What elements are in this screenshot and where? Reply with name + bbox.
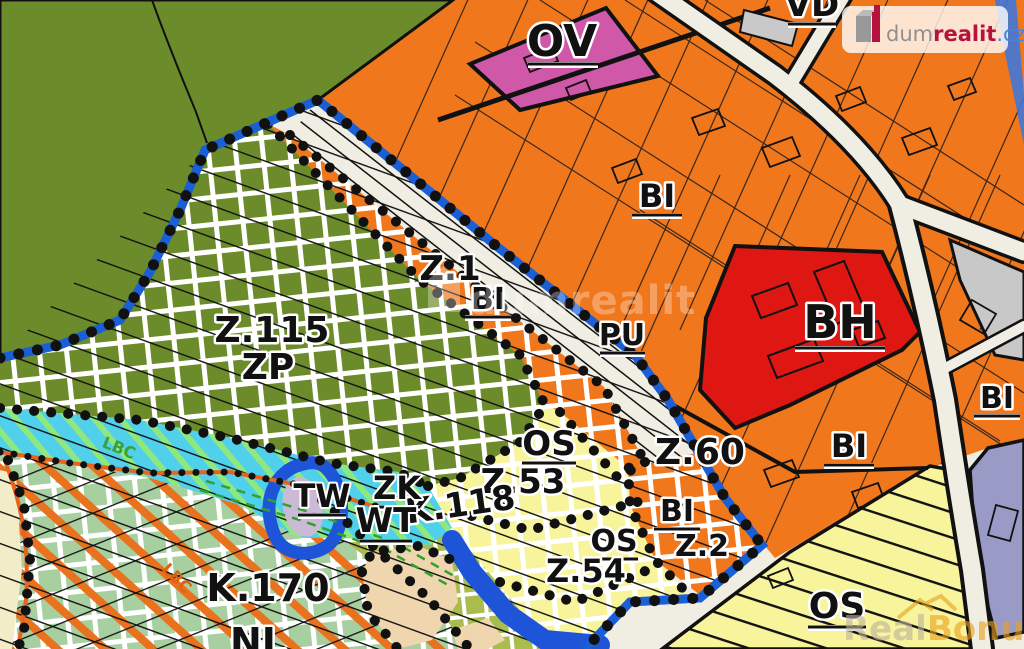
zone-label-k170: K.170 xyxy=(206,566,329,610)
watermark-text: dumrealit xyxy=(468,278,696,324)
zoning-map-canvas[interactable]: OV VD BI BH PU Z.1 BI Z.115 ZP Z.60 OS Z… xyxy=(0,0,1024,649)
zone-label-os-z53: OS xyxy=(522,424,575,464)
zone-label-bh: BH xyxy=(803,295,877,349)
zone-label-z115: Z.115 xyxy=(215,310,330,351)
zone-label-bi-mid: BI xyxy=(831,427,867,465)
zoning-map-viewport[interactable]: OV VD BI BH PU Z.1 BI Z.115 ZP Z.60 OS Z… xyxy=(0,0,1024,649)
zone-label-z2: Z.2 xyxy=(675,529,729,564)
zone-label-bi-north: BI xyxy=(639,177,675,215)
zone-label-zp: ZP xyxy=(242,347,295,388)
zone-label-bi-z2: BI xyxy=(660,494,694,529)
zone-label-wt: WT xyxy=(356,501,418,541)
zone-label-z54: Z.54 xyxy=(546,552,626,590)
zone-label-tw: TW xyxy=(293,477,350,515)
realbonus-text: RealBonus.cz xyxy=(843,609,1024,649)
zone-label-vd: VD xyxy=(785,0,840,25)
zone-label-bi-east: BI xyxy=(980,381,1014,416)
zone-label-z60: Z.60 xyxy=(655,432,745,473)
zone-label-ov: OV xyxy=(527,16,597,67)
zone-label-nl: NL xyxy=(230,620,286,649)
logo-text: dumrealit.cz xyxy=(886,22,1024,46)
